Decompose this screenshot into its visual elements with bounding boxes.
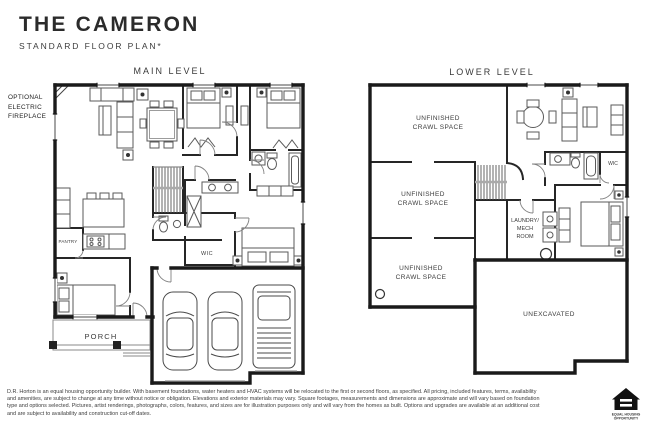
pantry-label: PANTRY [58, 239, 77, 244]
crawl-space-marker [376, 290, 385, 299]
laundry-mech-label3: ROOM [516, 234, 534, 240]
crawl-space-label-top: UNFINISHED [416, 115, 460, 122]
optional-fireplace-note: OPTIONAL ELECTRIC FIREPLACE [8, 93, 46, 122]
crawl-space-label-mid2: CRAWL SPACE [398, 200, 449, 207]
primary-bedroom-furniture [233, 186, 303, 266]
great-room-furniture [90, 88, 148, 160]
lower-stairs [475, 165, 507, 200]
family-room-furniture [517, 88, 623, 141]
house-icon [612, 388, 640, 410]
disclaimer: D.R. Horton is an equal housing opportun… [7, 389, 607, 418]
laundry-mech-label1: LAUNDRY/ [511, 218, 539, 224]
bedroom3-furniture [257, 88, 300, 148]
crawl-space-label-mid: UNFINISHED [401, 191, 445, 198]
wic-label: WIC [201, 251, 213, 257]
lower-level-floorplan: UNFINISHED CRAWL SPACE UNFINISHED CRAWL … [365, 82, 640, 377]
fireplace-icon [55, 85, 69, 99]
lower-bedroom-furniture [559, 191, 623, 256]
garage-cars [163, 285, 295, 370]
bedroom4-furniture [57, 273, 115, 315]
equal-housing-logo: EQUAL HOUSING OPPORTUNITY [611, 387, 641, 423]
disclaimer-line: and amenities, are subject to change at … [7, 396, 607, 403]
disclaimer-line: and are subject to availability and cons… [7, 411, 607, 418]
floorplan-sheet: THE CAMERON STANDARD FLOOR PLAN* MAIN LE… [0, 0, 650, 432]
primary-bath [187, 182, 238, 227]
page-title: THE CAMERON [19, 13, 200, 37]
unexcavated-label: UNEXCAVATED [523, 311, 575, 318]
page-subtitle: STANDARD FLOOR PLAN* [19, 41, 200, 51]
porch-label: PORCH [84, 332, 117, 341]
crawl-space-label-bottom2: CRAWL SPACE [396, 274, 447, 281]
hall-bathroom [252, 152, 301, 187]
powder-room [159, 216, 181, 232]
header: THE CAMERON STANDARD FLOOR PLAN* [19, 13, 200, 51]
main-level-floorplan: PANTRY WIC PORCH [45, 82, 307, 387]
dining-furniture [140, 101, 184, 148]
main-level-label: MAIN LEVEL [110, 66, 230, 76]
disclaimer-line: D.R. Horton is an equal housing opportun… [7, 389, 607, 396]
lower-wic-label: WIC [608, 161, 618, 167]
equal-housing-text2: OPPORTUNITY [614, 417, 639, 421]
disclaimer-line: type and options selected. Pictures, art… [7, 403, 607, 410]
crawl-space-label-top2: CRAWL SPACE [413, 124, 464, 131]
crawl-space-label-bottom: UNFINISHED [399, 265, 443, 272]
lower-bathroom [550, 153, 598, 179]
bedroom2-furniture [187, 88, 248, 147]
lower-level-label: LOWER LEVEL [430, 67, 554, 77]
laundry-mech-label2: MECH [517, 226, 533, 232]
stairs [153, 167, 183, 213]
